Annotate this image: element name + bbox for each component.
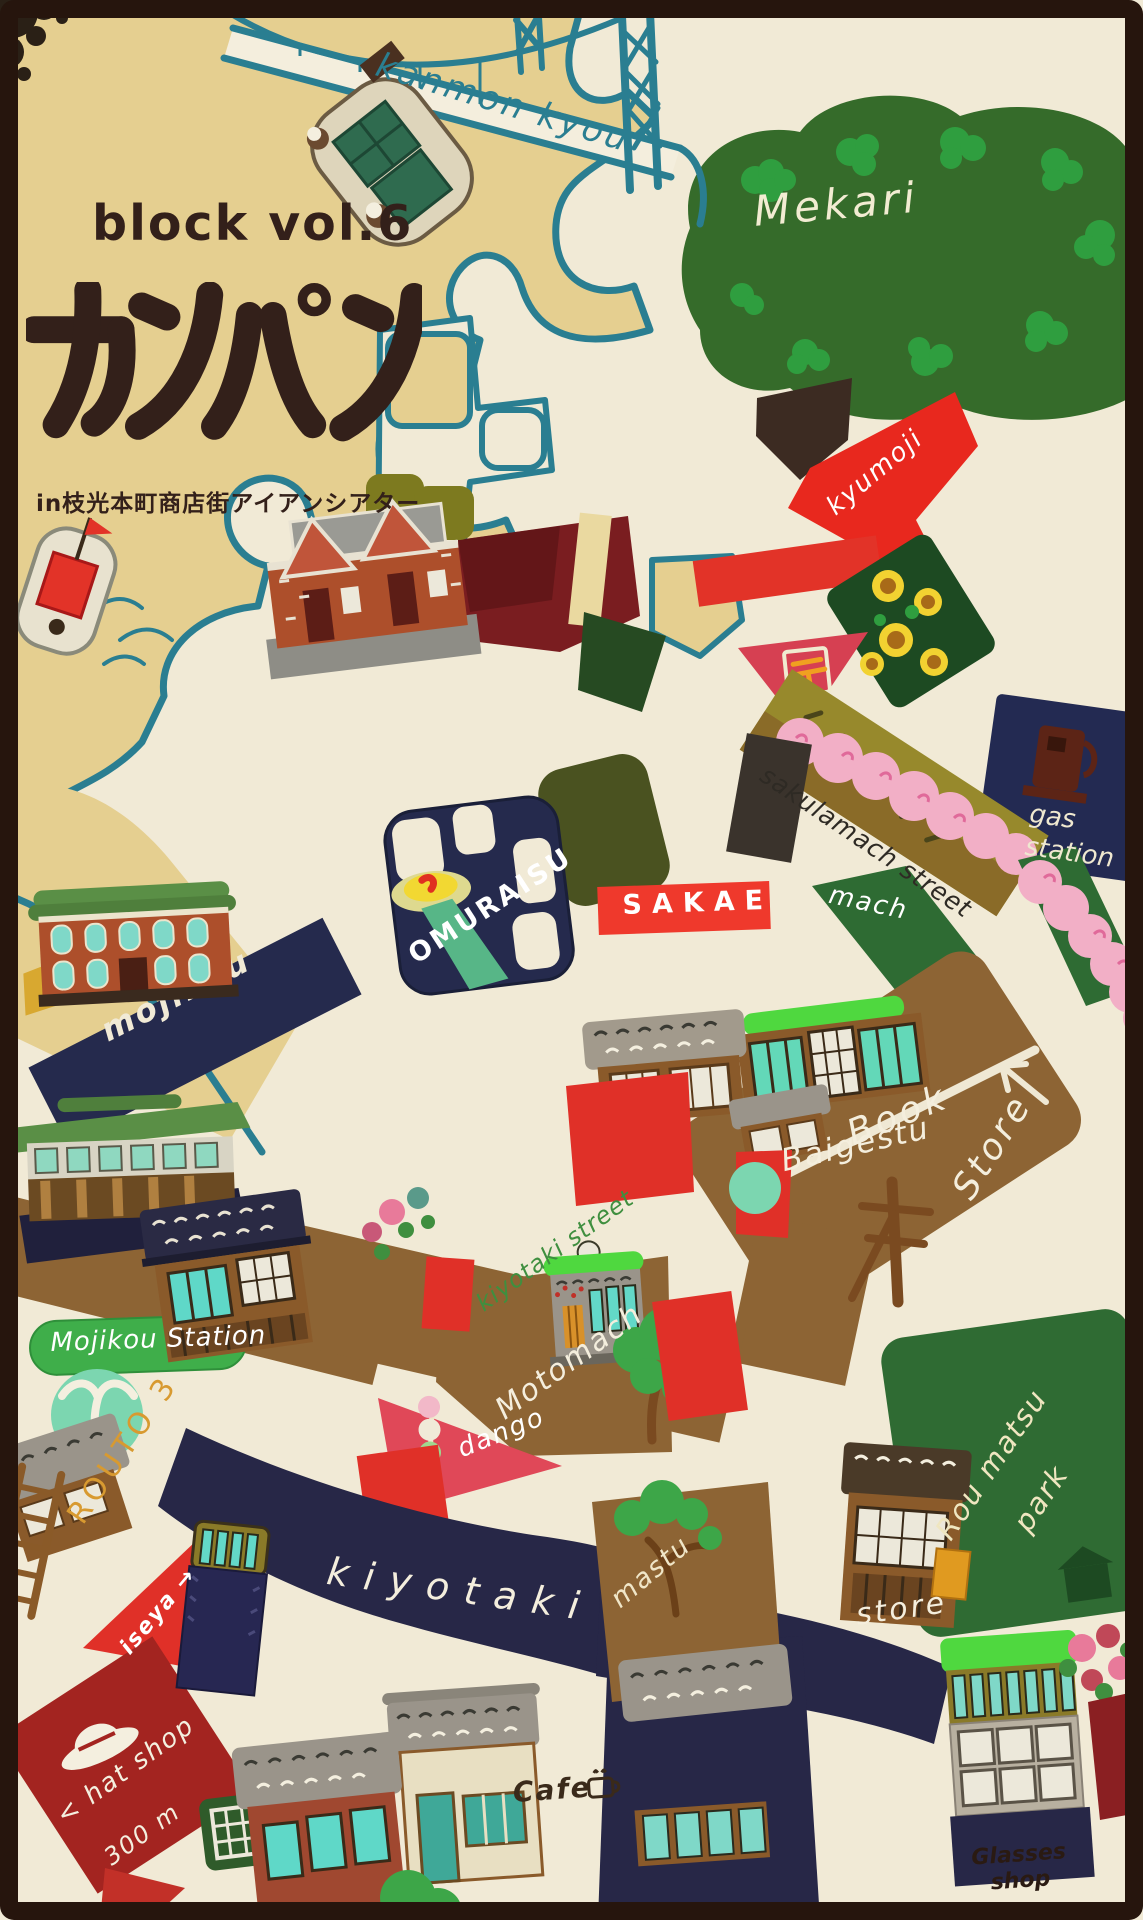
red-block <box>422 1256 475 1331</box>
red-block <box>652 1291 748 1421</box>
window-row-icon <box>634 1801 770 1866</box>
glasses-shop-label: Glasses shop <box>938 1837 1101 1901</box>
maroon-building-block <box>458 513 666 712</box>
title-katakana-art <box>26 282 422 478</box>
red-block <box>100 1868 185 1920</box>
cafe-label: Cafe <box>512 1773 592 1808</box>
roundabout-icon <box>729 1162 781 1214</box>
series-title: block vol.6 <box>92 198 413 249</box>
brick-building-icon <box>19 880 241 1015</box>
gas-station-label: gas station <box>1023 798 1127 876</box>
poster-subtitle: in枝光本町商店街アイアンシアター <box>36 492 420 516</box>
red-block <box>566 1072 694 1206</box>
mekari-park <box>682 96 1143 420</box>
sakae-label: SAKAE <box>622 887 774 921</box>
map-poster: mojikou <box>0 0 1143 1920</box>
maroon-block <box>1088 1690 1143 1820</box>
